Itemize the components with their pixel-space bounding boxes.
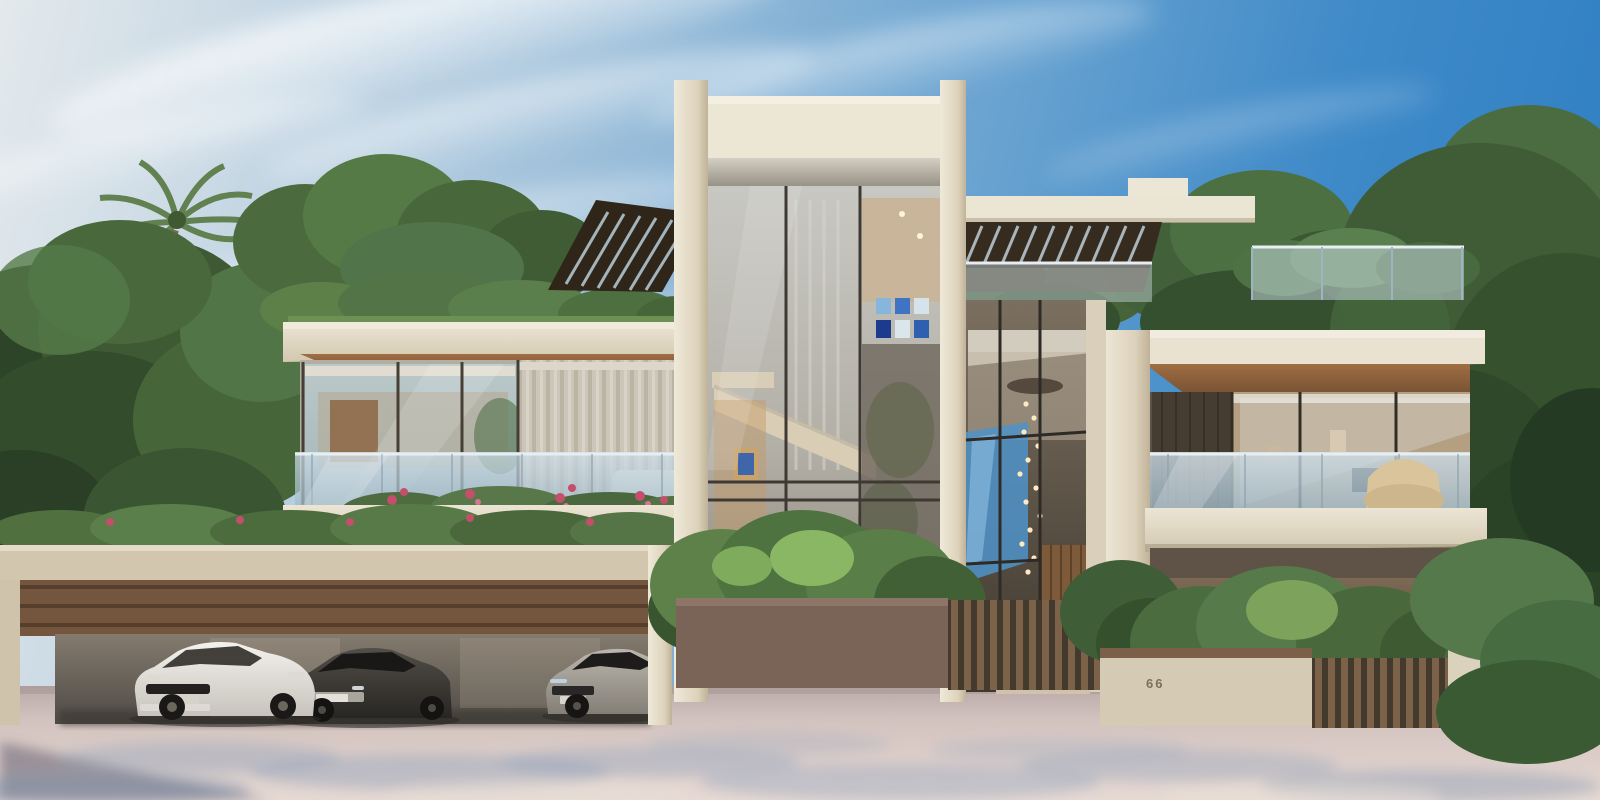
villa-scene [0,0,1600,800]
gate-wall [1100,648,1312,726]
ceiling-fixture [1007,378,1063,394]
planter-wall [676,598,948,688]
metal-band [706,158,944,188]
villa-render: 66 [0,0,1600,800]
garage [0,504,690,728]
terrace-glass-rail [952,262,1152,302]
gate-slat-fence [1312,658,1448,728]
house-number: 66 [1146,676,1164,691]
